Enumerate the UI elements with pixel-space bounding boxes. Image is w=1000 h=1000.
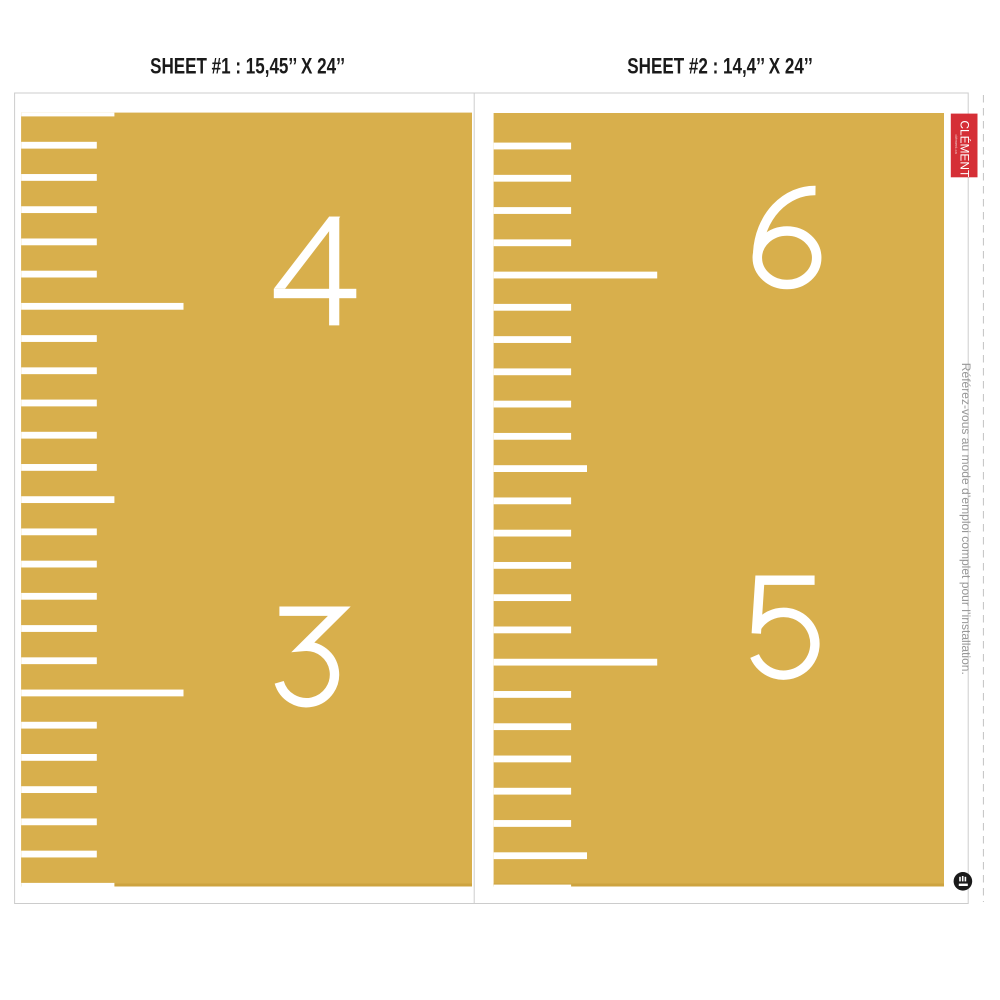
svg-text:Référez-vous au mode d’emploi: Référez-vous au mode d’emploi complet po… [959, 363, 973, 675]
svg-text:clément.ca: clément.ca [954, 135, 959, 155]
svg-text:SHEET #2 : 14,4’’ X 24’’: SHEET #2 : 14,4’’ X 24’’ [627, 54, 812, 79]
svg-text:SHEET #1 : 15,45’’ X 24’’: SHEET #1 : 15,45’’ X 24’’ [150, 54, 345, 79]
